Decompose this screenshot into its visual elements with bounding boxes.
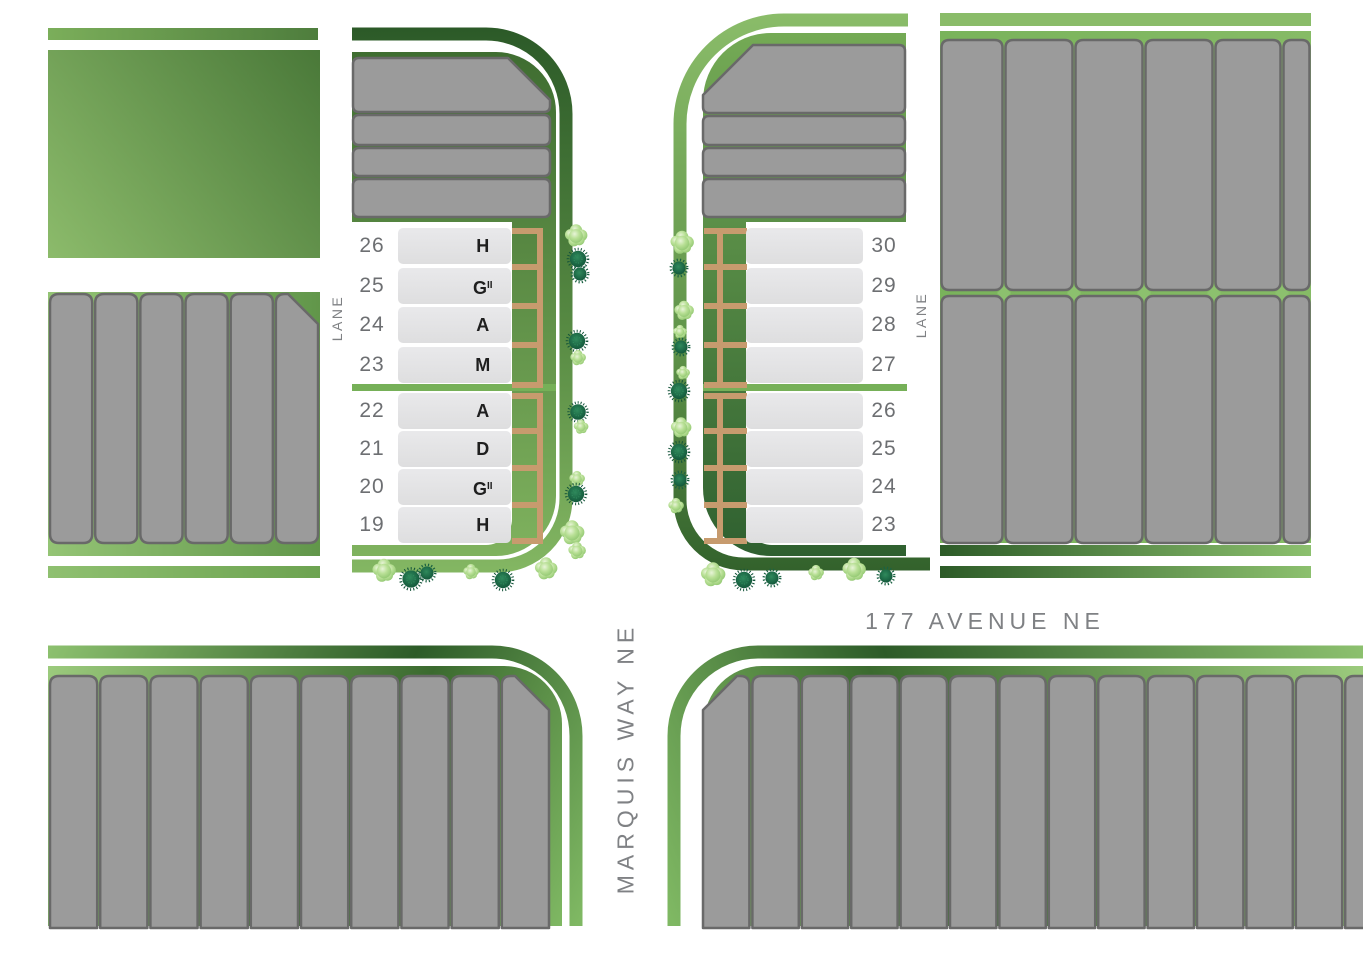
lot-box-right-30[interactable] — [746, 228, 863, 264]
lot-box-right-24[interactable] — [746, 469, 863, 505]
lot-number: 23 — [352, 347, 392, 383]
lane-label-east: LANE — [911, 255, 931, 375]
lot-box-left-24[interactable]: A — [398, 307, 511, 343]
lot-box-right-29[interactable] — [746, 268, 863, 304]
lot-model: A — [476, 393, 489, 429]
lot-number: 21 — [352, 431, 392, 467]
lot-number: 19 — [352, 507, 392, 543]
street-label-177-avenue: 177 AVENUE NE — [785, 608, 1185, 635]
lot-number: 23 — [862, 507, 906, 543]
lot-row-right-29: 29 — [746, 268, 906, 304]
lot-row-left-20: 20GII — [352, 469, 512, 505]
lot-box-left-20[interactable]: GII — [398, 469, 511, 505]
lot-row-right-24: 24 — [746, 469, 906, 505]
lot-row-left-24: 24A — [352, 307, 512, 343]
street-label-marquis-way: MARQUIS WAY NE — [613, 609, 640, 909]
lot-box-left-19[interactable]: H — [398, 507, 511, 543]
lot-box-left-23[interactable]: M — [398, 347, 511, 383]
lot-row-right-27: 27 — [746, 347, 906, 383]
lot-number: 25 — [862, 431, 906, 467]
lot-model: GII — [473, 469, 493, 505]
lot-row-left-22: 22A — [352, 393, 512, 429]
lot-number: 22 — [352, 393, 392, 429]
lot-box-left-25[interactable]: GII — [398, 268, 511, 304]
lot-number: 25 — [352, 268, 392, 304]
lot-row-right-25: 25 — [746, 431, 906, 467]
lot-row-left-23: 23M — [352, 347, 512, 383]
lot-box-right-26[interactable] — [746, 393, 863, 429]
lot-row-right-23: 23 — [746, 507, 906, 543]
lot-row-left-19: 19H — [352, 507, 512, 543]
lot-model: D — [476, 431, 489, 467]
lot-box-right-27[interactable] — [746, 347, 863, 383]
lot-box-right-25[interactable] — [746, 431, 863, 467]
lot-model: GII — [473, 268, 493, 304]
lot-number: 28 — [862, 307, 906, 343]
site-plan: LANE LANE 177 AVENUE NE MARQUIS WAY NE 2… — [0, 0, 1363, 969]
lot-box-right-28[interactable] — [746, 307, 863, 343]
lot-number: 30 — [862, 228, 906, 264]
lot-row-right-30: 30 — [746, 228, 906, 264]
lot-row-left-21: 21D — [352, 431, 512, 467]
lot-row-left-26: 26H — [352, 228, 512, 264]
lot-box-left-22[interactable]: A — [398, 393, 511, 429]
lot-number: 29 — [862, 268, 906, 304]
lot-model: H — [476, 228, 489, 264]
lot-number: 24 — [352, 307, 392, 343]
lot-number: 20 — [352, 469, 392, 505]
lot-number: 26 — [862, 393, 906, 429]
lot-row-left-25: 25GII — [352, 268, 512, 304]
lot-model: A — [476, 307, 489, 343]
lot-model: H — [476, 507, 489, 543]
lot-row-right-28: 28 — [746, 307, 906, 343]
lot-row-right-26: 26 — [746, 393, 906, 429]
lot-number: 27 — [862, 347, 906, 383]
lot-number: 24 — [862, 469, 906, 505]
lot-number: 26 — [352, 228, 392, 264]
lot-box-right-23[interactable] — [746, 507, 863, 543]
lot-model: M — [475, 347, 490, 383]
lot-box-left-21[interactable]: D — [398, 431, 511, 467]
lot-box-left-26[interactable]: H — [398, 228, 511, 264]
lane-label-west: LANE — [327, 258, 347, 378]
